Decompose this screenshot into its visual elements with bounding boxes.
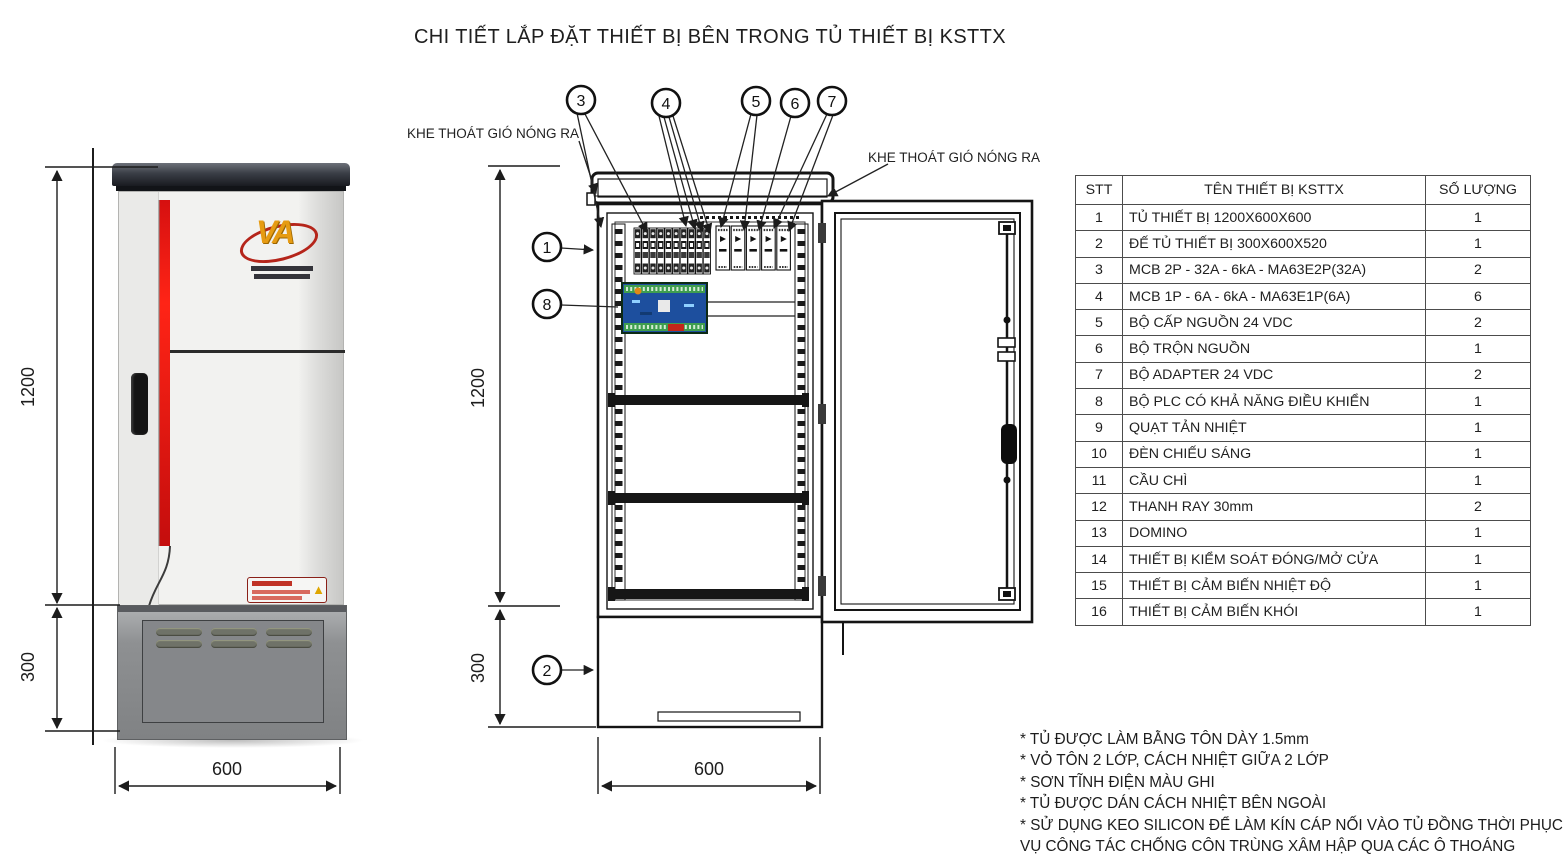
note-line: VỤ CÔNG TÁC CHỐNG CÔN TRÙNG XÂM HẬP QUA … [1020,836,1563,857]
qty-cell: 1 [1426,389,1531,415]
header-stt: STT [1076,176,1123,205]
stt-cell: 8 [1076,389,1123,415]
stt-cell: 7 [1076,362,1123,388]
header-name: TÊN THIẾT BỊ KSTTX [1123,176,1426,205]
vent-label-right: KHE THOÁT GIÓ NÓNG RA [868,150,1040,165]
stt-cell: 12 [1076,494,1123,520]
dim-base-middle: 300 [468,653,488,683]
stt-cell: 3 [1076,257,1123,283]
callout-1: 1 [533,233,561,261]
vent-label-left: KHE THOÁT GIÓ NÓNG RA [407,126,579,141]
power-supply-modules [716,226,790,270]
table-row: 16THIẾT BỊ CẢM BIẾN KHÓI1 [1076,599,1531,625]
stt-cell: 5 [1076,310,1123,336]
callout-6: 6 [781,89,809,117]
name-cell: BỘ PLC CÓ KHẢ NĂNG ĐIỀU KHIỂN [1123,389,1426,415]
svg-text:5: 5 [752,94,761,111]
dim-width-middle: 600 [694,759,724,779]
name-cell: THIẾT BỊ CẢM BIẾN NHIỆT ĐỘ [1123,573,1426,599]
equipment-table: STT TÊN THIẾT BỊ KSTTX SỐ LƯỢNG 1TỦ THIẾ… [1075,175,1531,626]
name-cell: THIẾT BỊ CẢM BIẾN KHÓI [1123,599,1426,625]
name-cell: BỘ ADAPTER 24 VDC [1123,362,1426,388]
name-cell: BỘ CẤP NGUỒN 24 VDC [1123,310,1426,336]
table-row: 14THIẾT BỊ KIỂM SOÁT ĐÓNG/MỞ CỬA1 [1076,546,1531,572]
table-row: 15THIẾT BỊ CẢM BIẾN NHIỆT ĐỘ1 [1076,573,1531,599]
qty-cell: 1 [1426,415,1531,441]
svg-text:1: 1 [543,240,552,257]
note-line: * SƠN TĨNH ĐIỆN MÀU GHI [1020,772,1563,793]
stt-cell: 10 [1076,441,1123,467]
table-row: 7BỘ ADAPTER 24 VDC2 [1076,362,1531,388]
table-row: 6BỘ TRỘN NGUỒN1 [1076,336,1531,362]
callout-4: 4 [652,89,680,117]
table-row: 4MCB 1P - 6A - 6kA - MA63E1P(6A)6 [1076,283,1531,309]
qty-cell: 2 [1426,310,1531,336]
svg-text:2: 2 [543,663,552,680]
name-cell: THIẾT BỊ KIỂM SOÁT ĐÓNG/MỞ CỬA [1123,546,1426,572]
qty-cell: 1 [1426,336,1531,362]
name-cell: ĐÈN CHIẾU SÁNG [1123,441,1426,467]
note-line: * SỬ DỤNG KEO SILICON ĐỂ LÀM KÍN CÁP NỐI… [1020,815,1563,836]
name-cell: THANH RAY 30mm [1123,494,1426,520]
stt-cell: 14 [1076,546,1123,572]
stt-cell: 16 [1076,599,1123,625]
qty-cell: 6 [1426,283,1531,309]
dim-height-middle: 1200 [468,368,488,408]
qty-cell: 1 [1426,520,1531,546]
stt-cell: 15 [1076,573,1123,599]
note-line: * VỎ TÔN 2 LỚP, CÁCH NHIỆT GIỮA 2 LỚP [1020,750,1563,771]
door-lock-handle [1001,424,1017,464]
callout-7: 7 [818,87,846,115]
qty-cell: 1 [1426,599,1531,625]
stt-cell: 13 [1076,520,1123,546]
table-row: 5BỘ CẤP NGUỒN 24 VDC2 [1076,310,1531,336]
stt-cell: 11 [1076,467,1123,493]
stt-cell: 2 [1076,231,1123,257]
table-row: 12THANH RAY 30mm2 [1076,494,1531,520]
mcb-breaker-row [634,228,711,274]
qty-cell: 1 [1426,467,1531,493]
qty-cell: 2 [1426,257,1531,283]
svg-text:7: 7 [828,94,837,111]
callout-8: 8 [533,290,561,318]
qty-cell: 2 [1426,494,1531,520]
callout-5: 5 [742,87,770,115]
qty-cell: 1 [1426,231,1531,257]
name-cell: ĐẾ TỦ THIẾT BỊ 300X600X520 [1123,231,1426,257]
qty-cell: 1 [1426,441,1531,467]
stt-cell: 1 [1076,205,1123,231]
dim-base-left: 300 [18,652,38,682]
svg-text:8: 8 [543,297,552,314]
drawing-sheet: CHI TIẾT LẮP ĐẶT THIẾT BỊ BÊN TRONG TỦ T… [0,0,1565,861]
name-cell: QUẠT TẢN NHIỆT [1123,415,1426,441]
table-row: 11CẦU CHÌ1 [1076,467,1531,493]
header-qty: SỐ LƯỢNG [1426,176,1531,205]
table-row: 8BỘ PLC CÓ KHẢ NĂNG ĐIỀU KHIỂN1 [1076,389,1531,415]
callout-2: 2 [533,656,561,684]
table-row: 1TỦ THIẾT BỊ 1200X600X6001 [1076,205,1531,231]
table-row: 13DOMINO1 [1076,520,1531,546]
qty-cell: 2 [1426,362,1531,388]
qty-cell: 1 [1426,546,1531,572]
qty-cell: 1 [1426,205,1531,231]
table-row: 3MCB 2P - 32A - 6kA - MA63E2P(32A)2 [1076,257,1531,283]
stt-cell: 4 [1076,283,1123,309]
svg-text:4: 4 [662,96,671,113]
table-row: 2ĐẾ TỦ THIẾT BỊ 300X600X5201 [1076,231,1531,257]
left-view-dimensions: 1200 300 600 [18,148,340,794]
stt-cell: 6 [1076,336,1123,362]
note-line: * TỦ ĐƯỢC LÀM BẰNG TÔN DÀY 1.5mm [1020,729,1563,750]
qty-cell: 1 [1426,573,1531,599]
stt-cell: 9 [1076,415,1123,441]
name-cell: BỘ TRỘN NGUỒN [1123,336,1426,362]
dim-width-left: 600 [212,759,242,779]
name-cell: TỦ THIẾT BỊ 1200X600X600 [1123,205,1426,231]
name-cell: MCB 1P - 6A - 6kA - MA63E1P(6A) [1123,283,1426,309]
svg-text:3: 3 [577,93,586,110]
table-header-row: STT TÊN THIẾT BỊ KSTTX SỐ LƯỢNG [1076,176,1531,205]
svg-text:6: 6 [791,96,800,113]
callout-3: 3 [567,86,595,114]
name-cell: DOMINO [1123,520,1426,546]
name-cell: MCB 2P - 32A - 6kA - MA63E2P(32A) [1123,257,1426,283]
table-row: 10ĐÈN CHIẾU SÁNG1 [1076,441,1531,467]
notes-block: * TỦ ĐƯỢC LÀM BẰNG TÔN DÀY 1.5mm * VỎ TÔ… [1020,729,1563,857]
dim-height-left: 1200 [18,367,38,407]
name-cell: CẦU CHÌ [1123,467,1426,493]
table-row: 9QUẠT TẢN NHIỆT1 [1076,415,1531,441]
note-line: * TỦ ĐƯỢC DÁN CÁCH NHIỆT BÊN NGOÀI [1020,793,1563,814]
equipment-table-body: 1TỦ THIẾT BỊ 1200X600X60012ĐẾ TỦ THIẾT B… [1076,205,1531,626]
